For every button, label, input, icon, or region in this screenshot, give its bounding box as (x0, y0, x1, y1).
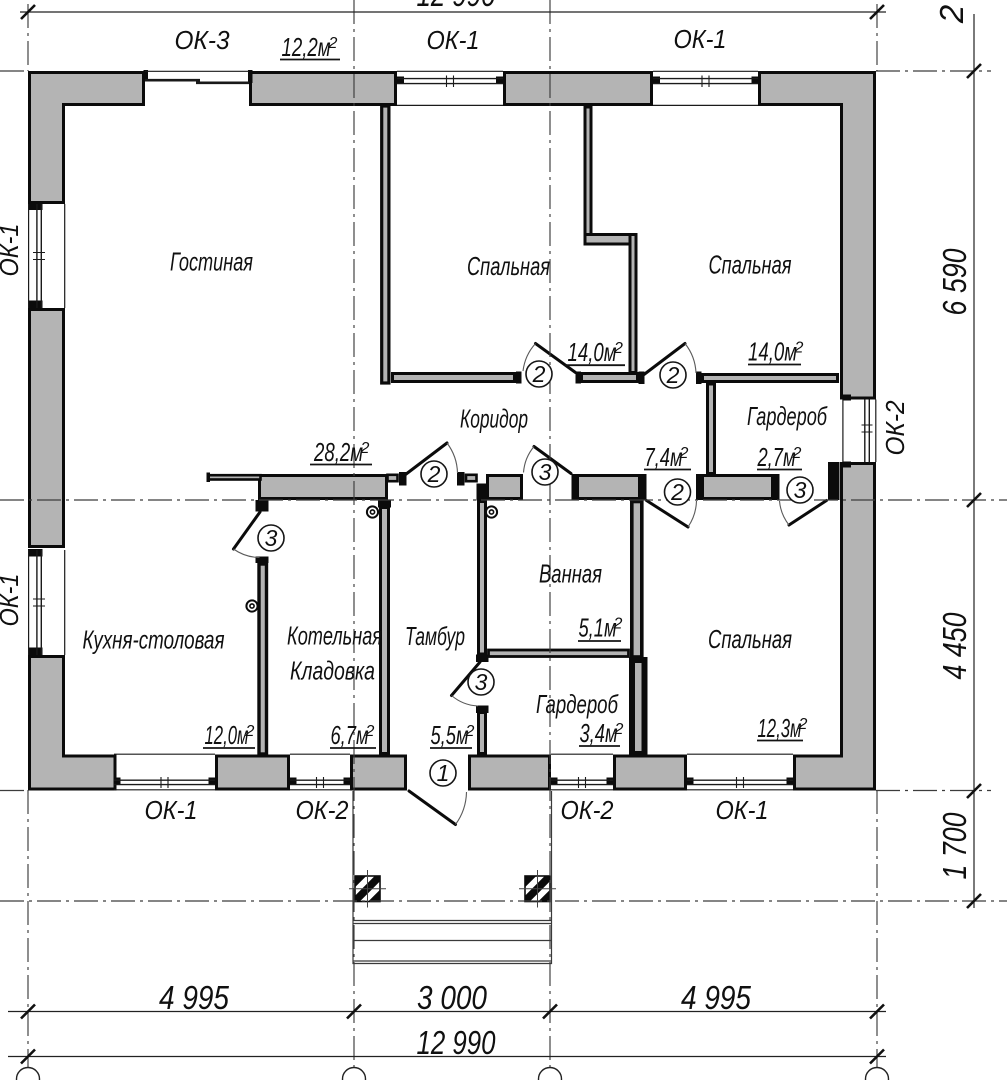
svg-text:4 450: 4 450 (936, 612, 973, 680)
svg-text:3: 3 (265, 525, 278, 551)
svg-text:2: 2 (613, 616, 623, 633)
svg-text:3 000: 3 000 (417, 979, 488, 1016)
svg-text:Кухня-столовая: Кухня-столовая (83, 625, 225, 655)
svg-text:5,1м: 5,1м (579, 613, 617, 643)
svg-text:ОК-2: ОК-2 (296, 795, 349, 825)
svg-text:3,4м: 3,4м (580, 718, 618, 748)
svg-text:2: 2 (613, 340, 623, 357)
svg-text:Гардероб: Гардероб (747, 401, 828, 431)
svg-text:2: 2 (614, 721, 624, 738)
svg-text:6 590: 6 590 (936, 248, 973, 316)
svg-text:2,7м: 2,7м (757, 442, 796, 472)
svg-text:2: 2 (365, 723, 375, 740)
svg-text:1: 1 (437, 760, 450, 786)
svg-text:2: 2 (532, 361, 546, 387)
svg-text:2: 2 (465, 723, 475, 740)
svg-text:2: 2 (792, 445, 802, 462)
svg-text:2: 2 (427, 461, 441, 487)
svg-text:7,4м: 7,4м (645, 442, 683, 472)
svg-text:Кладовка: Кладовка (290, 656, 375, 686)
svg-text:ОК-2: ОК-2 (880, 400, 910, 455)
svg-text:12 990: 12 990 (417, 0, 497, 13)
svg-text:Ванная: Ванная (539, 559, 602, 589)
svg-text:2: 2 (933, 5, 970, 24)
svg-text:12,3м: 12,3м (758, 713, 802, 743)
svg-text:Спальная: Спальная (709, 250, 792, 280)
svg-text:Коридор: Коридор (460, 404, 528, 434)
svg-text:28,2м: 28,2м (313, 437, 363, 467)
svg-text:2: 2 (666, 362, 680, 388)
svg-text:3: 3 (539, 459, 552, 485)
svg-text:ОК-1: ОК-1 (427, 25, 480, 55)
svg-text:2: 2 (328, 35, 338, 52)
svg-text:ОК-3: ОК-3 (175, 25, 230, 55)
svg-text:Спальная: Спальная (708, 624, 792, 654)
svg-text:ОК-1: ОК-1 (716, 795, 769, 825)
svg-text:12 990: 12 990 (417, 1024, 497, 1061)
svg-text:ОК-2: ОК-2 (561, 795, 614, 825)
svg-text:14,0м: 14,0м (748, 337, 797, 367)
svg-text:14,0м: 14,0м (568, 337, 617, 367)
svg-text:2: 2 (794, 340, 804, 357)
svg-text:Тамбур: Тамбур (405, 621, 465, 651)
svg-text:Котельная: Котельная (287, 621, 382, 651)
svg-text:2: 2 (670, 479, 684, 505)
svg-text:12,0м: 12,0м (205, 720, 249, 750)
svg-text:6,7м: 6,7м (331, 720, 369, 750)
svg-text:2: 2 (679, 445, 689, 462)
svg-text:12,2м: 12,2м (282, 32, 331, 62)
svg-text:ОК-1: ОК-1 (0, 574, 24, 627)
svg-text:Гардероб: Гардероб (536, 689, 619, 719)
svg-text:4 995: 4 995 (159, 979, 230, 1016)
svg-text:2: 2 (360, 440, 370, 457)
svg-text:2: 2 (798, 716, 808, 733)
svg-text:4 995: 4 995 (681, 979, 752, 1016)
svg-text:ОК-1: ОК-1 (145, 795, 198, 825)
svg-text:ОК-1: ОК-1 (0, 224, 24, 277)
svg-text:ОК-1: ОК-1 (674, 24, 727, 54)
svg-text:1 700: 1 700 (936, 812, 973, 880)
svg-text:5,5м: 5,5м (431, 720, 469, 750)
svg-text:Спальная: Спальная (467, 251, 550, 281)
svg-text:2: 2 (245, 723, 255, 740)
svg-text:Гостиная: Гостиная (170, 247, 253, 277)
svg-text:3: 3 (794, 477, 807, 503)
svg-text:3: 3 (475, 669, 488, 695)
